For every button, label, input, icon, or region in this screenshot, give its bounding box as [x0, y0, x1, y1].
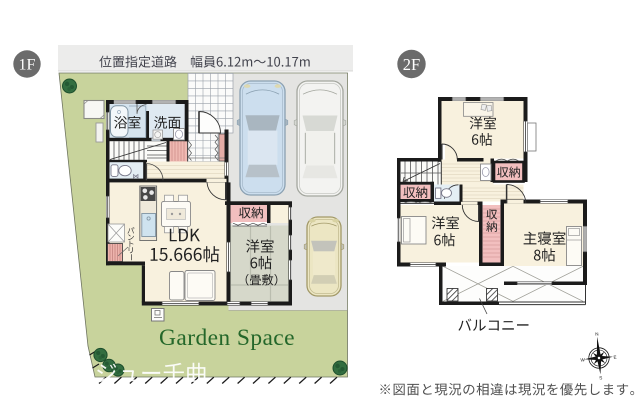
svg-text:S: S	[599, 375, 603, 380]
svg-text:E: E	[613, 354, 617, 359]
svg-text:1F: 1F	[19, 57, 36, 74]
svg-text:Garden Space: Garden Space	[159, 325, 295, 351]
svg-text:2F: 2F	[403, 55, 420, 74]
svg-text:N: N	[595, 331, 599, 336]
